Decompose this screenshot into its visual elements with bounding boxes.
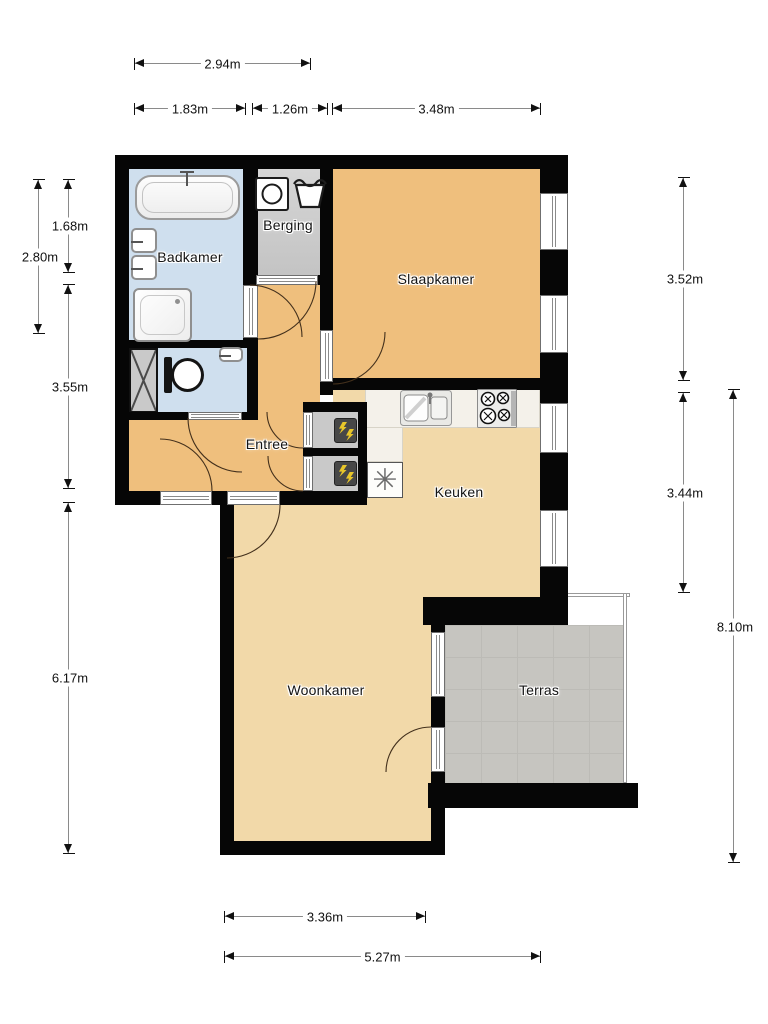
room-label-woonkamer: Woonkamer [287,682,364,698]
dimension-top-294: 2.94m [135,63,310,64]
door-terras [431,727,445,772]
shower-icon [133,288,192,342]
dimension-right-344: 3.44m [683,393,684,592]
dimension-bottom-527: 5.27m [225,956,540,957]
window-keuken-1 [540,403,568,453]
wall-woonkamer-bottom [220,841,445,855]
shaft-icon [129,348,158,413]
dimension-bottom-336: 3.36m [225,916,425,917]
wall-right-4 [540,453,568,510]
door-voordeur [160,491,212,505]
stove-icon [477,389,517,428]
wall-right-5 [540,567,568,597]
toilet-sink-icon [219,347,243,362]
dimension-left-355: 3.55m [68,285,69,488]
wall-toilet-bottom-right [242,412,258,420]
wall-terrace-bottom [428,783,638,808]
wall-woonkamer-right-2 [431,697,445,727]
dimension-top-126: 1.26m [253,108,327,109]
room-label-terras: Terras [519,682,559,698]
wall-keuken-top [320,378,568,390]
toilet-bowl-icon [171,358,204,392]
kitchen-sink-icon [400,390,452,426]
dimension-right-352: 3.52m [683,178,684,380]
door-meterkast-2 [303,456,313,491]
wall-woonkamer-right-1 [431,620,445,632]
meter-icon-1 [334,418,357,443]
bathtub-faucet-icon [186,172,188,186]
room-entree-floor-hall [258,283,320,420]
door-meterkast-1 [303,412,313,448]
wall-meterkast-right [358,402,367,497]
wall-badkamer-right-upper [243,155,258,285]
door-slaapkamer [320,330,333,382]
ventilation-symbol: ✳ [372,463,397,498]
room-label-keuken: Keuken [435,484,484,500]
wall-toilet-right [247,348,258,420]
washbasin-2-icon [131,255,157,280]
wall-left [115,155,129,505]
window-woonkamer [431,632,445,697]
floor-plan: ✳ Badkamer Berging Slaapkamer Entree Keu… [0,0,768,1024]
washbasin-1-icon [131,228,157,253]
room-label-slaapkamer: Slaapkamer [398,271,475,287]
room-woonkamer-floor [234,505,431,841]
wall-right-3 [540,353,568,403]
dimension-top-183: 1.83m [135,108,245,109]
laundry-basket-icon [292,176,328,210]
ventilation-icon: ✳ [367,462,403,498]
door-berging [256,275,318,285]
door-badkamer [243,285,258,338]
wall-toilet-bottom-left [129,412,188,420]
door-woonkamer-entry [227,491,280,505]
wall-top [115,155,568,169]
dimension-left-280: 2.80m [38,180,39,333]
washing-machine-icon [255,177,289,211]
wall-right-2 [540,250,568,295]
window-slaapkamer-2 [540,295,568,353]
dimension-left-168: 1.68m [68,180,69,272]
wall-right-1 [540,155,568,193]
terrace-floor [445,625,623,783]
bathtub-faucet-bar-icon [180,171,194,173]
dimension-left-617: 6.17m [68,503,69,853]
terrace-railing-top [567,593,630,597]
kitchen-counter-side [365,427,403,462]
wall-woonkamer-left [220,491,234,855]
dimension-right-810: 8.10m [733,390,734,862]
room-label-berging: Berging [263,217,313,233]
wall-berging-bottom-left [243,275,256,285]
window-keuken-2 [540,510,568,567]
terrace-railing-right [623,593,627,783]
room-label-entree: Entree [246,436,288,452]
wall-entree-bottom-1 [115,491,160,505]
dimension-top-348: 3.48m [333,108,540,109]
window-slaapkamer-1 [540,193,568,250]
room-label-badkamer: Badkamer [157,249,222,265]
wall-entree-bottom-3 [280,491,367,505]
door-toilet [188,412,242,420]
meter-icon-2 [334,461,357,486]
